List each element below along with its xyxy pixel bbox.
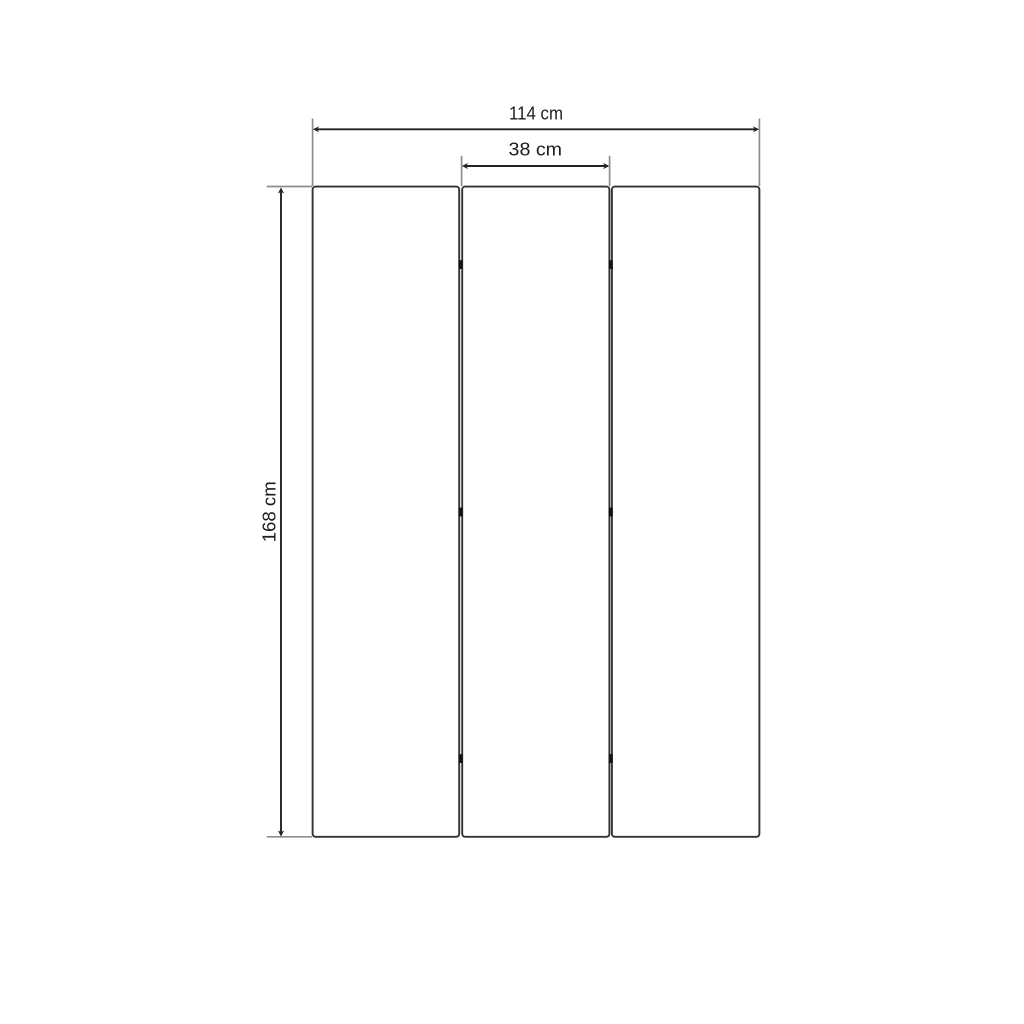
svg-text:38 cm: 38 cm: [509, 139, 563, 160]
svg-text:168 cm: 168 cm: [258, 481, 279, 542]
svg-text:114 cm: 114 cm: [509, 102, 563, 123]
